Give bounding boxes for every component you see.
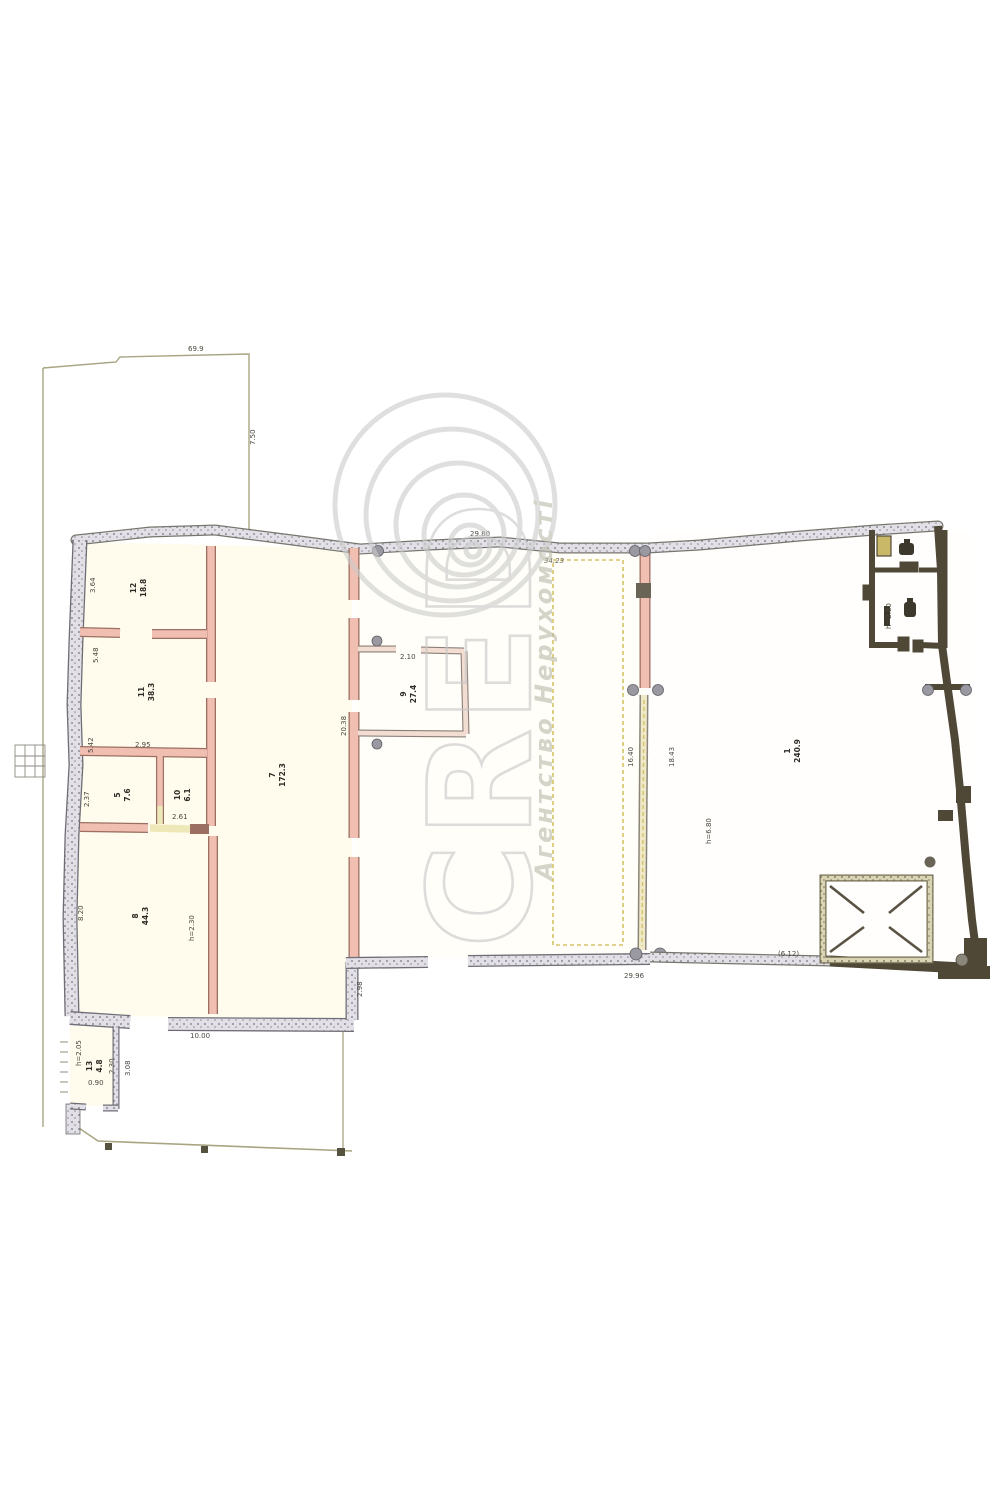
dim-r8-h: h=2.30	[188, 915, 196, 941]
dim-r13-h: h=2.05	[75, 1040, 83, 1066]
dim-wall-a: 2.95	[135, 741, 151, 749]
dim-left-1: 3.64	[89, 577, 97, 593]
dim-bottom-left: 10.00	[190, 1032, 210, 1040]
dim-r7-len: 20.38	[340, 716, 348, 736]
svg-text:18.8: 18.8	[139, 579, 148, 598]
dim-wall-b: 2.61	[172, 813, 188, 821]
svg-text:6.1: 6.1	[183, 788, 192, 801]
dim-parcel-top: 69.9	[188, 345, 204, 353]
svg-text:240.9: 240.9	[793, 739, 802, 763]
dim-r13-l: 3.08	[124, 1060, 132, 1076]
dim-left-2: 5.48	[92, 647, 100, 663]
dim-parcel-right: 7.50	[249, 429, 257, 445]
column	[956, 954, 968, 966]
svg-text:13: 13	[85, 1061, 94, 1071]
svg-text:8: 8	[131, 913, 140, 918]
dim-hall-w: 18.43	[668, 747, 676, 767]
svg-text:4.8: 4.8	[95, 1059, 104, 1072]
floorplan-drawing: 69.9 7.50 29.80 34.23 3.64 5.48 5.42 2.3…	[0, 0, 999, 1500]
room-label-13: 13 4.8	[85, 1059, 104, 1072]
dim-platform: (6.12)	[778, 950, 799, 958]
column	[923, 685, 934, 696]
floorplan-scan-page: 69.9 7.50 29.80 34.23 3.64 5.48 5.42 2.3…	[0, 0, 999, 1500]
dim-r13-door: 0.90	[88, 1079, 104, 1087]
dim-hall-bottom: 29.96	[624, 972, 645, 980]
column	[961, 685, 972, 696]
svg-text:172.3: 172.3	[278, 763, 287, 787]
dim-left-4: 2.37	[83, 791, 91, 807]
watermark-agency-text: Агентство Нерухомості	[530, 497, 558, 882]
dim-left-3: 5.42	[87, 737, 95, 753]
svg-text:44.3: 44.3	[141, 907, 150, 926]
dim-step-right: 2.98	[356, 981, 364, 997]
gate-steps-grid	[15, 745, 45, 777]
svg-text:12: 12	[129, 583, 138, 593]
svg-text:7: 7	[268, 772, 277, 777]
dim-left-5: 8.20	[77, 905, 85, 921]
column	[925, 857, 936, 868]
svg-text:10: 10	[173, 790, 182, 800]
svg-text:11: 11	[137, 687, 146, 697]
dim-annex-w: 16.40	[627, 747, 635, 767]
boiler-fixture	[877, 536, 891, 556]
svg-text:38.3: 38.3	[147, 683, 156, 702]
dim-wc-h: h=2.80	[885, 603, 893, 629]
svg-text:1: 1	[783, 748, 792, 753]
dim-hall-h: h=6.80	[705, 818, 713, 844]
svg-text:7.6: 7.6	[123, 788, 132, 801]
room-label-10: 10 6.1	[173, 788, 192, 801]
svg-text:5: 5	[113, 792, 122, 797]
